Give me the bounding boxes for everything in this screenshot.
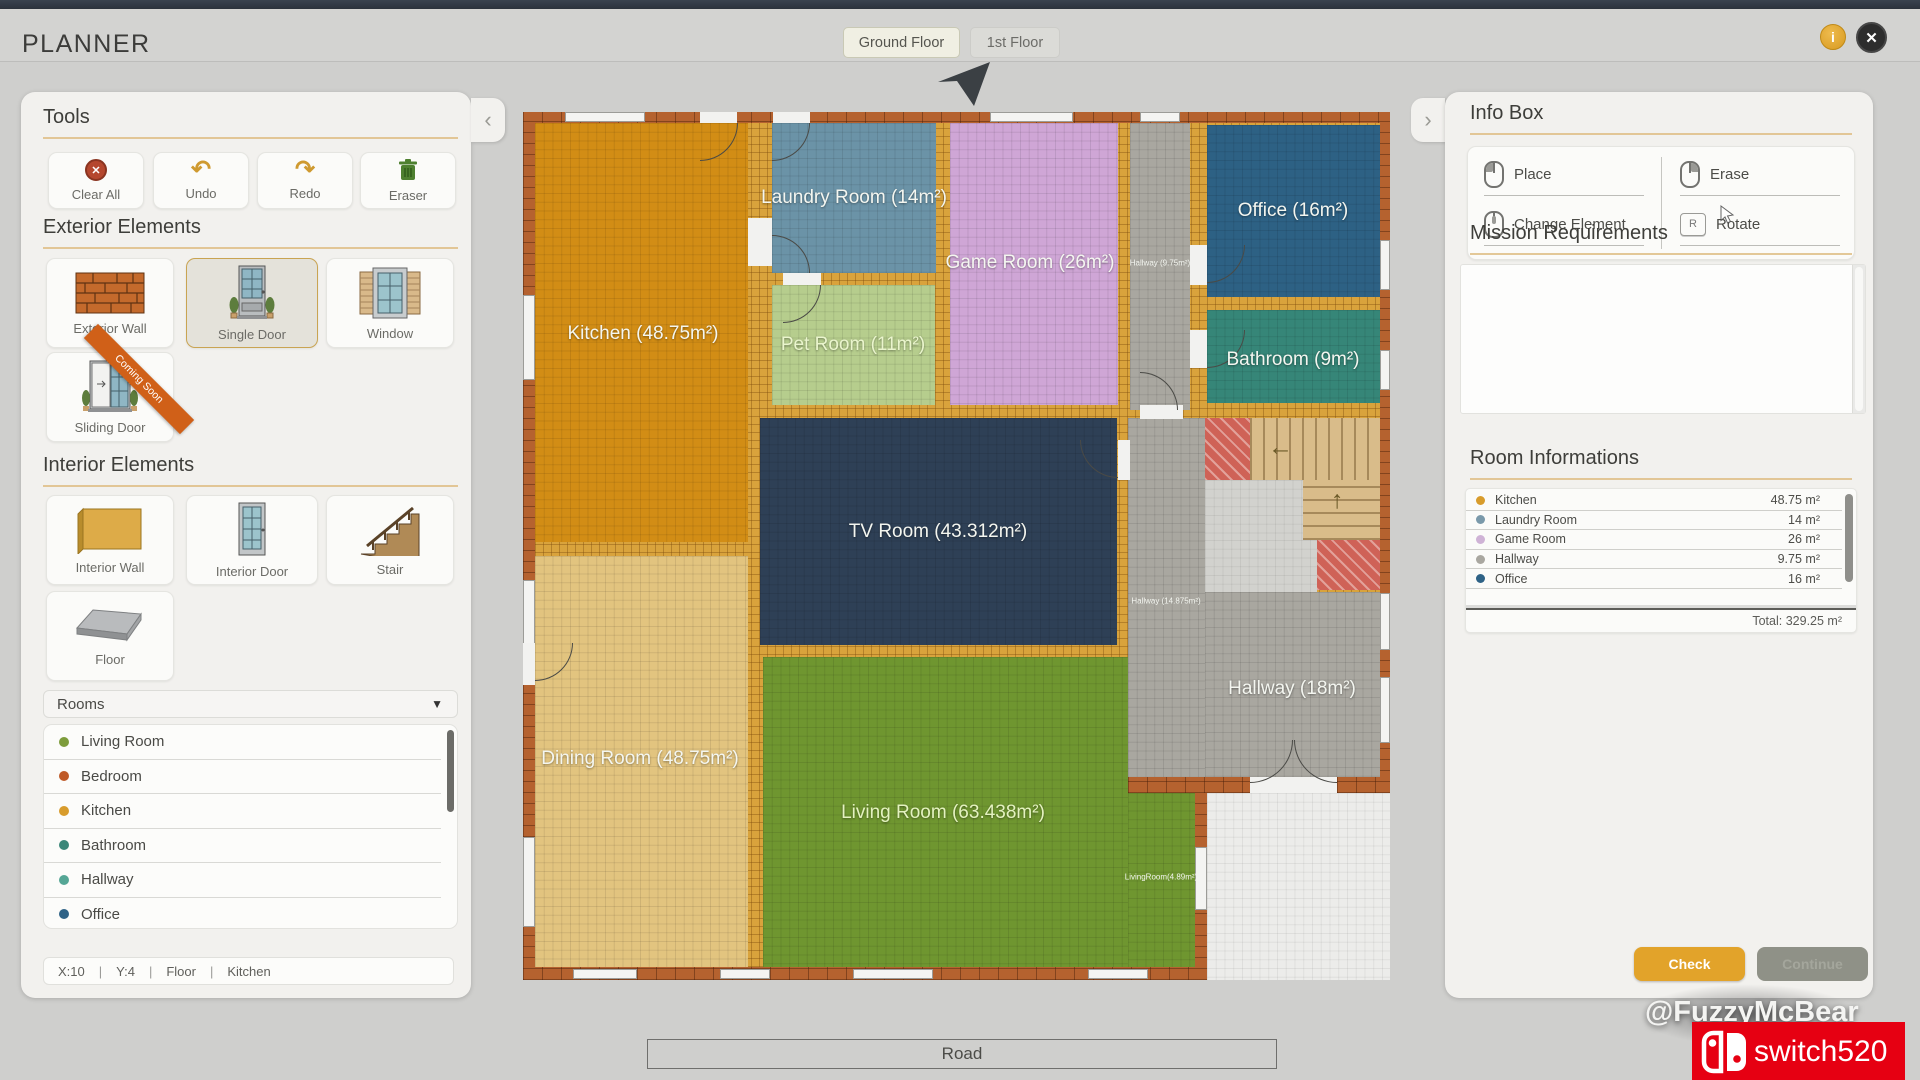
room-info-total: Total: 329.25 m²	[1466, 608, 1856, 632]
door-opening[interactable]	[1190, 245, 1207, 285]
rooms-list-scrollbar[interactable]	[447, 730, 454, 812]
chevron-left-icon: ‹	[484, 107, 491, 133]
interior-elements-heading: Interior Elements	[43, 454, 194, 477]
cursor-icon	[1720, 205, 1735, 224]
color-dot	[59, 840, 69, 850]
color-dot	[1476, 496, 1485, 505]
chevron-down-icon: ▼	[431, 697, 443, 711]
mouse-left-icon	[1484, 161, 1504, 188]
room-info-scrollbar[interactable]	[1845, 494, 1853, 582]
info-box-heading: Info Box	[1470, 102, 1543, 125]
status-x: X:10	[58, 964, 85, 979]
room-label-hallway: Hallway (18m²)	[1228, 678, 1356, 700]
table-row: Hallway9.75 m²	[1466, 550, 1842, 570]
stair-icon	[359, 504, 421, 556]
color-dot	[59, 771, 69, 781]
window[interactable]	[853, 969, 933, 979]
mission-scrollbar[interactable]	[1852, 265, 1865, 413]
interior-door-icon	[233, 502, 271, 558]
table-row: Office16 m²	[1466, 569, 1842, 589]
door-opening[interactable]	[773, 112, 810, 123]
right-info-panel: Info Box Place Change Element Erase R Ro…	[1445, 92, 1873, 998]
single-door-icon	[229, 265, 275, 321]
rooms-list: Living Room Bedroom Kitchen Bathroom Hal…	[43, 724, 458, 929]
color-dot	[59, 875, 69, 885]
color-dot	[1476, 515, 1485, 524]
status-bar: X:10 | Y:4 | Floor | Kitchen	[43, 957, 454, 985]
road-label-bar: Road	[647, 1039, 1277, 1069]
door-opening[interactable]	[783, 273, 821, 285]
tab-1st-floor[interactable]: 1st Floor	[970, 27, 1060, 58]
room-informations-box: Kitchen48.75 m² Laundry Room14 m² Game R…	[1465, 488, 1857, 633]
table-row: Laundry Room14 m²	[1466, 511, 1842, 531]
door-opening[interactable]	[1250, 777, 1337, 793]
window-icon	[358, 266, 422, 320]
window[interactable]	[565, 112, 645, 122]
undo-button[interactable]: ↶ Undo	[153, 152, 249, 209]
door-opening[interactable]	[1118, 440, 1130, 480]
room-label-office: Office (16m²)	[1238, 200, 1349, 222]
status-room: Kitchen	[227, 964, 270, 979]
stair-blocked-cell	[1317, 540, 1380, 590]
door-opening[interactable]	[748, 218, 772, 266]
floor-button[interactable]: Floor	[46, 591, 174, 681]
key-r-icon: R	[1680, 213, 1706, 236]
room-informations-heading: Room Informations	[1470, 447, 1639, 470]
table-row: Kitchen48.75 m²	[1466, 491, 1842, 511]
window-top-strip	[0, 0, 1920, 9]
collapse-right-panel-button[interactable]: ›	[1411, 98, 1445, 142]
door-opening[interactable]	[1190, 330, 1207, 368]
window[interactable]	[523, 837, 535, 927]
hint-place: Place	[1484, 153, 1644, 196]
room-label-pet: Pet Room (11m²)	[781, 334, 925, 356]
door-opening[interactable]	[1140, 405, 1183, 419]
room-label-kitchen: Kitchen (48.75m²)	[567, 323, 718, 345]
window[interactable]	[990, 112, 1073, 122]
window[interactable]	[1088, 969, 1148, 979]
chevron-right-icon: ›	[1424, 107, 1431, 133]
status-layer: Floor	[166, 964, 196, 979]
top-bar: PLANNER	[0, 9, 1920, 62]
list-item-kitchen[interactable]: Kitchen	[44, 794, 441, 829]
window[interactable]	[573, 969, 637, 979]
tab-ground-floor[interactable]: Ground Floor	[843, 27, 960, 58]
exterior-wall-icon	[75, 271, 145, 315]
mouse-right-icon	[1680, 161, 1700, 188]
color-dot	[59, 737, 69, 747]
sliding-door-button[interactable]: Sliding Door Coming Soon	[46, 352, 174, 442]
window-button[interactable]: Window	[326, 258, 454, 348]
single-door-button[interactable]: Single Door	[186, 258, 318, 348]
interior-wall-button[interactable]: Interior Wall	[46, 495, 174, 585]
hint-rotate: R Rotate	[1680, 203, 1840, 246]
floor-plan-canvas[interactable]: ← ↑	[523, 110, 1390, 982]
exterior-elements-heading: Exterior Elements	[43, 216, 201, 239]
room-label-game: Game Room (26m²)	[946, 252, 1115, 274]
color-dot	[59, 909, 69, 919]
window[interactable]	[720, 969, 770, 979]
list-item-living-room[interactable]: Living Room	[44, 725, 441, 760]
planner-app: PLANNER Ground Floor 1st Floor i ✕ Tools…	[0, 0, 1920, 1080]
stair-blocked-cell	[1205, 418, 1250, 480]
clear-all-icon: ✕	[85, 159, 107, 181]
stairs-up-arrow-icon: ↑	[1331, 488, 1344, 512]
room-label-living-annex: LivingRoom(4.89m²)	[1125, 873, 1197, 882]
trash-icon	[398, 158, 418, 182]
list-item-bedroom[interactable]: Bedroom	[44, 760, 441, 795]
stairs-left-arrow-icon: ←	[1268, 435, 1293, 459]
window[interactable]	[523, 295, 535, 380]
window[interactable]	[1380, 593, 1390, 650]
redo-button[interactable]: ↷ Redo	[257, 152, 353, 209]
info-icon[interactable]: i	[1820, 24, 1846, 50]
tools-heading: Tools	[43, 106, 90, 129]
list-item-bathroom[interactable]: Bathroom	[44, 829, 441, 864]
room-label-laundry: Laundry Room (14m²)	[761, 187, 947, 209]
close-icon[interactable]: ✕	[1856, 22, 1887, 53]
compass-north-arrow-icon	[938, 60, 992, 108]
room-label-living: Living Room (63.438m²)	[841, 802, 1045, 824]
room-label-tv: TV Room (43.312m²)	[849, 521, 1027, 543]
redo-icon: ↷	[295, 160, 315, 180]
color-dot	[1476, 555, 1485, 564]
window[interactable]	[1380, 350, 1390, 390]
window[interactable]	[1380, 240, 1390, 290]
left-toolbox-panel: Tools ✕ Clear All ↶ Undo ↷ Redo Eraser E…	[21, 92, 471, 998]
window[interactable]	[1380, 677, 1390, 743]
stair-button[interactable]: Stair	[326, 495, 454, 585]
room-label-bathroom: Bathroom (9m²)	[1226, 349, 1359, 371]
color-dot	[59, 806, 69, 816]
status-y: Y:4	[116, 964, 135, 979]
room-label-hallway-small: Hallway (9.75m²)	[1130, 259, 1190, 268]
room-label-dining: Dining Room (48.75m²)	[541, 748, 738, 770]
outdoor-area[interactable]	[1207, 793, 1390, 980]
floor-icon	[75, 606, 145, 646]
mission-heading: Mission Requirements	[1470, 222, 1668, 245]
door-opening[interactable]	[523, 643, 535, 685]
color-dot	[1476, 535, 1485, 544]
room-label-hallway-mid: Hallway (14.875m²)	[1131, 597, 1200, 606]
stair-landing	[1205, 540, 1317, 592]
color-dot	[1476, 574, 1485, 583]
list-item-office[interactable]: Office	[44, 898, 441, 930]
exterior-wall-button[interactable]: Exterior Wall	[46, 258, 174, 348]
eraser-button[interactable]: Eraser	[360, 152, 456, 209]
interior-wall-icon	[75, 506, 145, 554]
watermark-badge: switch520	[1692, 1022, 1905, 1080]
window[interactable]	[1140, 112, 1180, 122]
list-item-hallway[interactable]: Hallway	[44, 863, 441, 898]
clear-all-button[interactable]: ✕ Clear All	[48, 152, 144, 209]
switch-logo-icon	[1700, 1030, 1750, 1074]
door-opening[interactable]	[700, 112, 737, 123]
rooms-dropdown[interactable]: Rooms ▼	[43, 690, 458, 718]
table-row: Game Room26 m²	[1466, 530, 1842, 550]
hint-erase: Erase	[1680, 153, 1840, 196]
interior-door-button[interactable]: Interior Door	[186, 495, 318, 585]
undo-icon: ↶	[191, 160, 211, 180]
stair-landing	[1205, 480, 1303, 540]
mission-requirements-box	[1460, 264, 1866, 414]
collapse-left-panel-button[interactable]: ‹	[471, 98, 505, 142]
page-title: PLANNER	[22, 30, 151, 59]
